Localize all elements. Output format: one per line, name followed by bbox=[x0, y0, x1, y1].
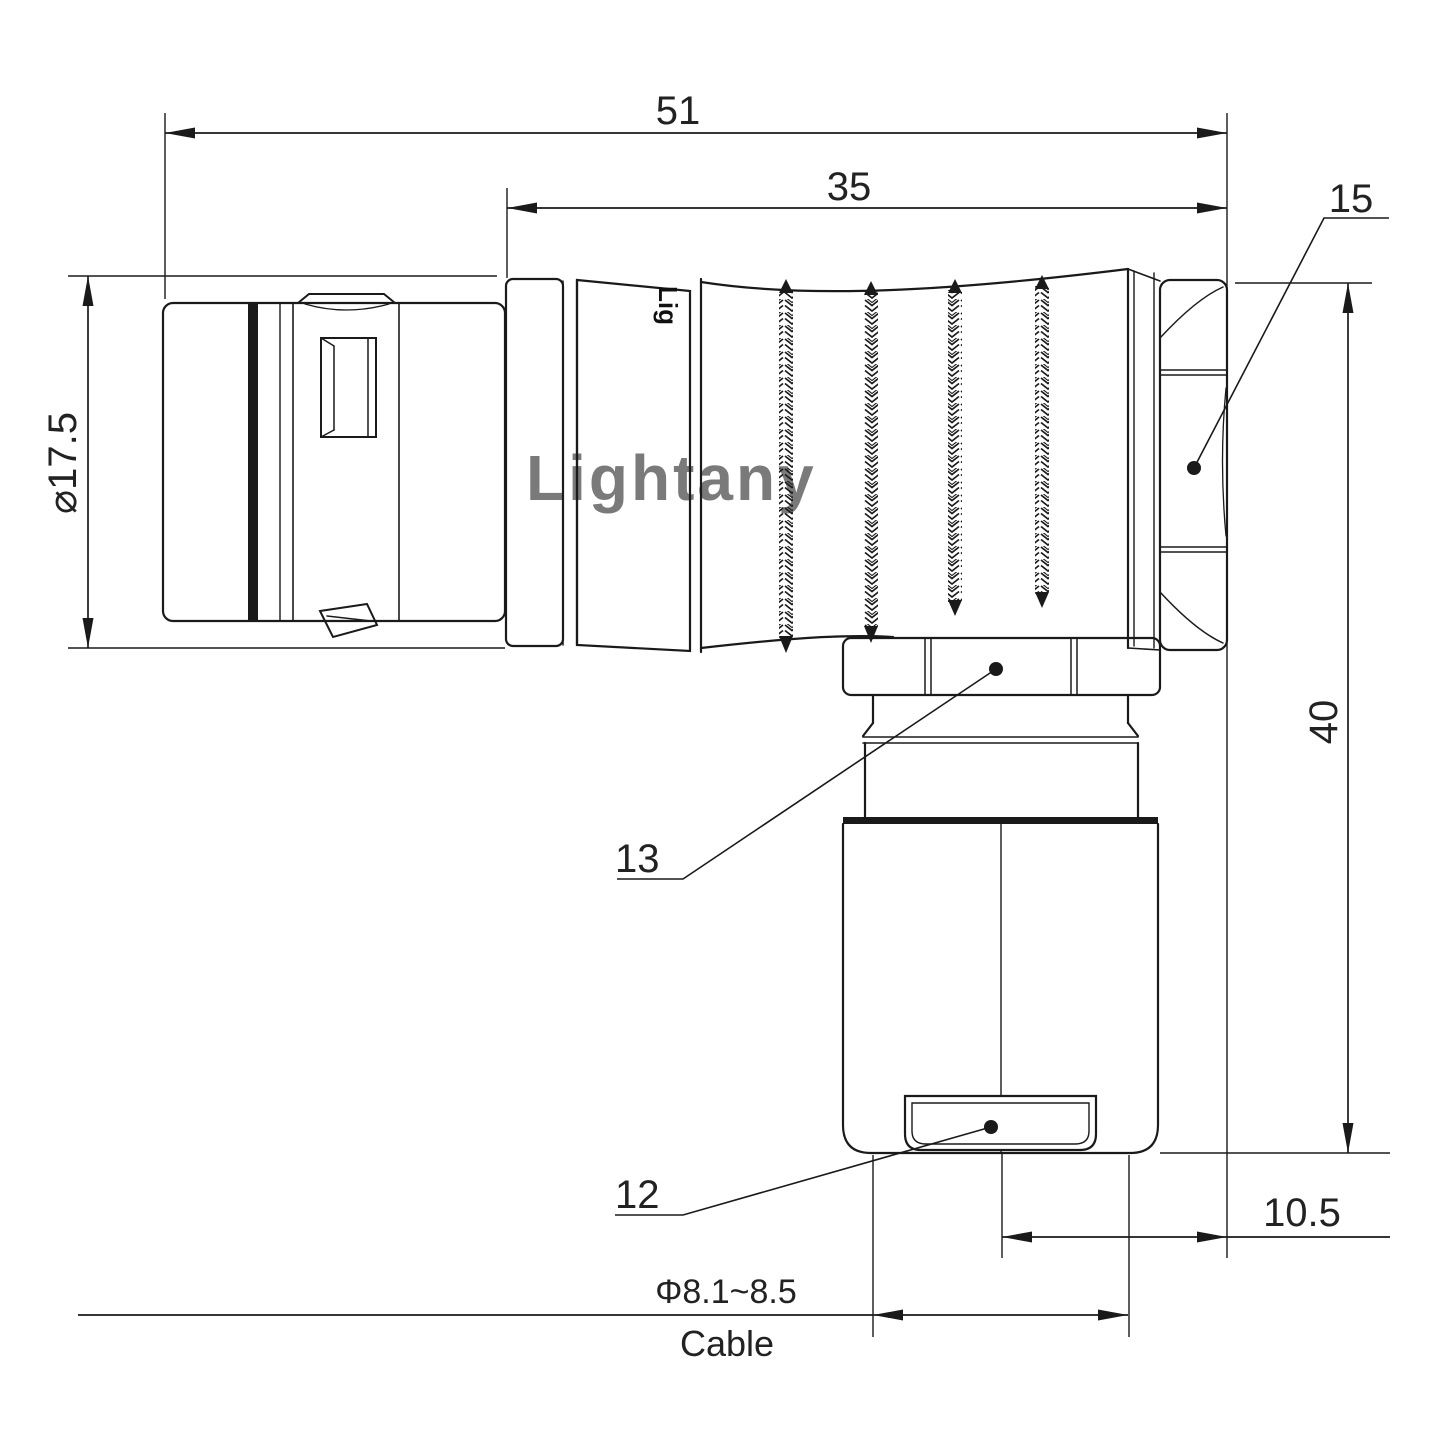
extension-lines bbox=[68, 113, 1390, 1337]
dim-plug-diameter-label: ⌀17.5 bbox=[41, 412, 85, 514]
dim-offset-label: 10.5 bbox=[1263, 1191, 1341, 1235]
dim-overall-length: 51 bbox=[165, 89, 1227, 139]
callout-rear-nut: 15 bbox=[1187, 177, 1389, 475]
cable-bushing bbox=[905, 1096, 1096, 1150]
knurl-strips bbox=[779, 275, 1049, 653]
dim-offset: 10.5 bbox=[1002, 1191, 1390, 1243]
connector-body-group: Lig bbox=[163, 269, 1227, 1153]
dim-body-length: 35 bbox=[507, 165, 1227, 214]
callout-cable-bushing-label: 12 bbox=[615, 1173, 660, 1217]
callout-rear-nut-dot bbox=[1187, 461, 1201, 475]
dim-cable-diameter-label: Φ8.1~8.5 bbox=[655, 1273, 797, 1311]
connector-elbow-drawing: Lightany bbox=[0, 0, 1440, 1440]
technical-drawing-page: Lightany bbox=[0, 0, 1440, 1440]
callout-rear-nut-label: 15 bbox=[1329, 177, 1374, 221]
dim-height-label: 40 bbox=[1302, 700, 1346, 745]
watermark-text: Lightany bbox=[526, 442, 817, 514]
shell-ring-band bbox=[248, 303, 258, 621]
dim-cable: Φ8.1~8.5 Cable bbox=[78, 1273, 1128, 1364]
callout-cable-bushing-dot bbox=[984, 1120, 998, 1134]
dim-cable-word-label: Cable bbox=[680, 1323, 774, 1364]
dim-plug-diameter: ⌀17.5 bbox=[41, 276, 94, 648]
plug-shell bbox=[163, 294, 505, 637]
callout-coupling-nut-label: 13 bbox=[615, 837, 660, 881]
dim-height: 40 bbox=[1302, 283, 1354, 1153]
callout-coupling-nut-dot bbox=[989, 662, 1003, 676]
dim-overall-length-label: 51 bbox=[656, 89, 701, 133]
body-marking-text: Lig bbox=[653, 286, 683, 325]
branch-neck bbox=[863, 695, 1138, 817]
dim-body-length-label: 35 bbox=[827, 165, 872, 209]
latch-window bbox=[321, 338, 376, 437]
